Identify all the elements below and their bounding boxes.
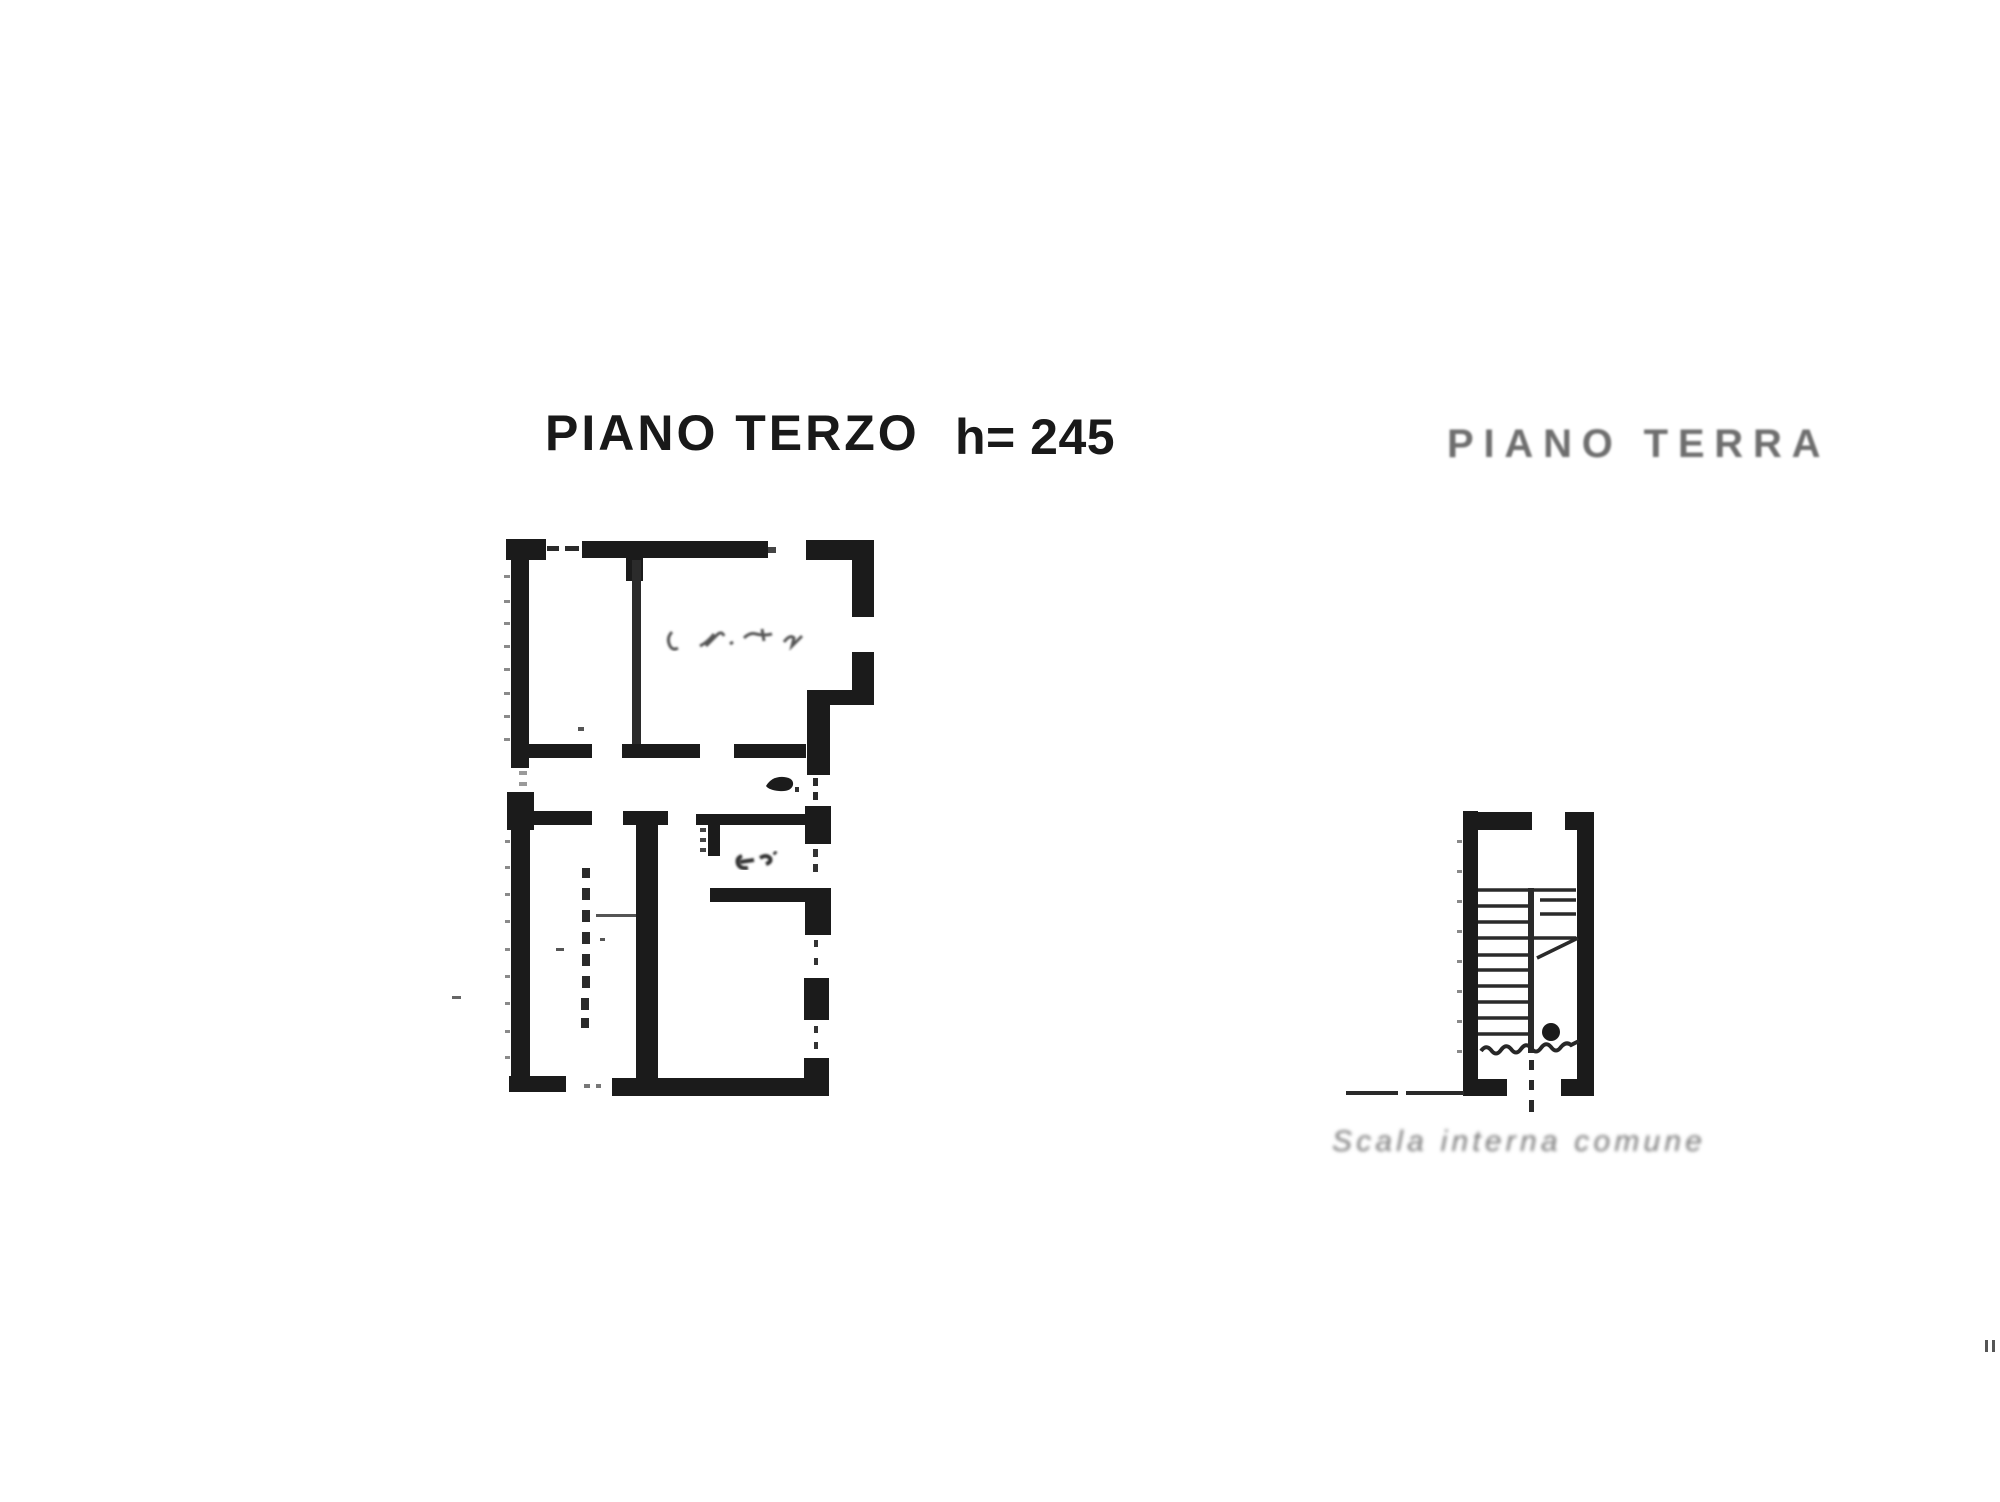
svg-text:Scala interna comune: Scala interna comune bbox=[1332, 1125, 1706, 1158]
svg-text:h= 245: h= 245 bbox=[955, 409, 1115, 465]
svg-text:PIANO TERZO: PIANO TERZO bbox=[545, 405, 920, 461]
svg-text:PIANO TERRA: PIANO TERRA bbox=[1447, 422, 1830, 466]
